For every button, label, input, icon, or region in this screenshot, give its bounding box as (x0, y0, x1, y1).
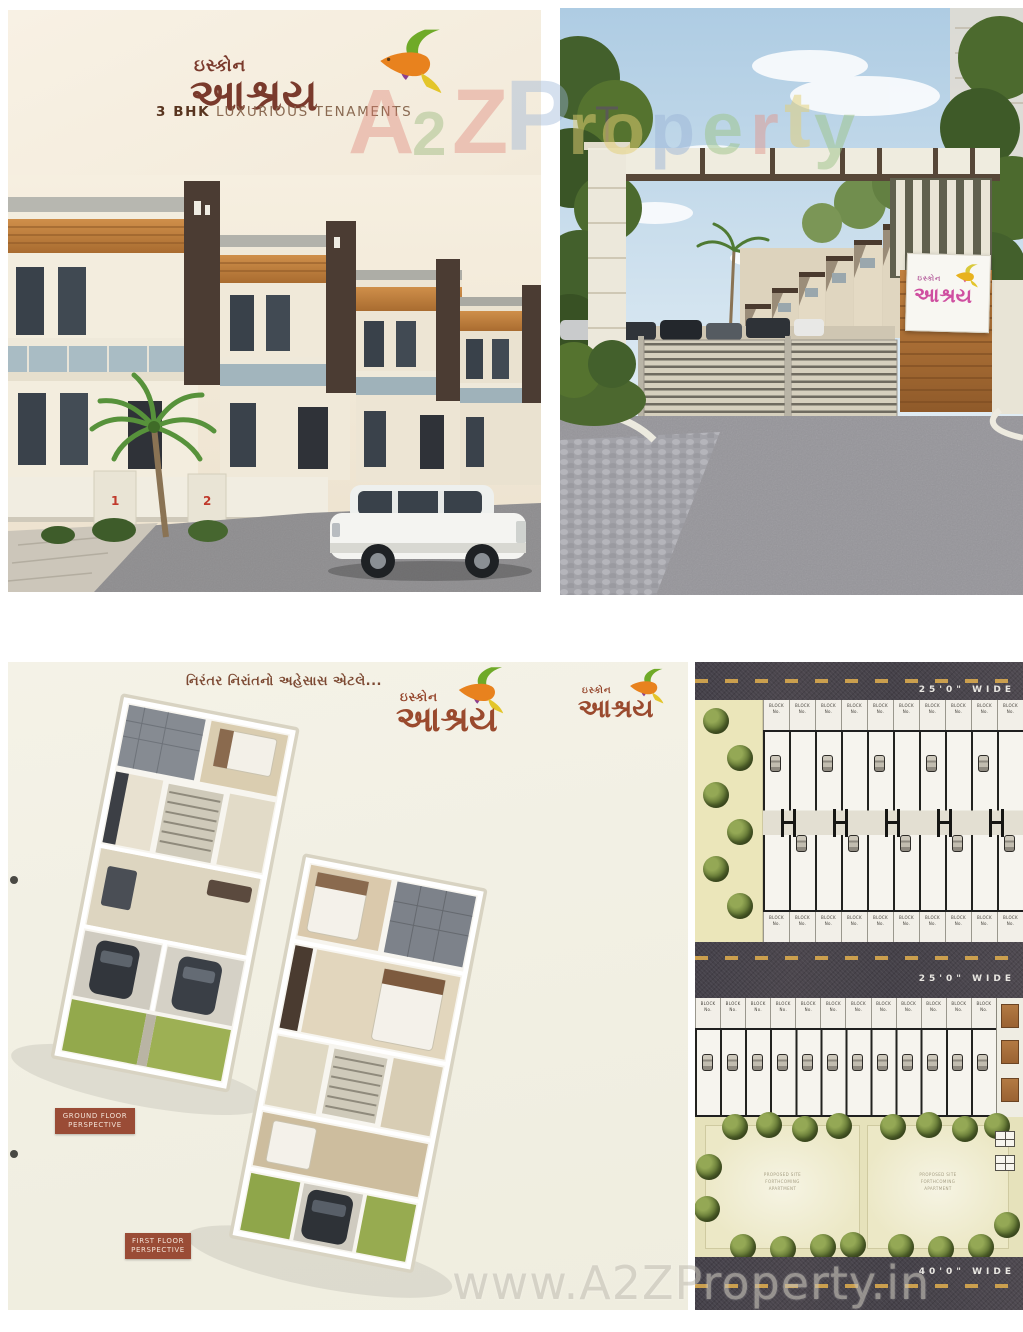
block-labels-row: BLOCKNo.BLOCKNo.BLOCKNo.BLOCKNo.BLOCKNo.… (763, 910, 1023, 942)
block-label: BLOCKNo. (971, 700, 997, 730)
parked-car-icon (1004, 835, 1015, 852)
shrub (188, 520, 228, 542)
parked-car-icon (827, 1054, 838, 1071)
plot-field-2 (695, 1030, 996, 1115)
block-label: BLOCKNo. (763, 912, 789, 942)
bushes-left (560, 340, 646, 426)
block-label: BLOCKNo. (946, 998, 971, 1028)
block-label: BLOCKNo. (871, 998, 896, 1028)
metal-gate (638, 336, 897, 422)
parked-car-icon (900, 835, 911, 852)
tree-icon (696, 1154, 722, 1180)
binder-hole (10, 876, 18, 884)
driveway-marking (833, 809, 848, 837)
block-label: BLOCKNo. (971, 998, 996, 1028)
cover-panel: 1 2 (8, 10, 541, 592)
tree-icon (695, 1196, 720, 1222)
block-label: BLOCKNo. (745, 998, 770, 1028)
block-label: BLOCKNo. (867, 700, 893, 730)
parked-car-icon (822, 755, 833, 772)
plot-field-1 (763, 732, 1023, 910)
parking-block (1001, 1078, 1019, 1102)
tree-icon (952, 1116, 978, 1142)
tree-icon (703, 708, 729, 734)
house-block-1 (8, 181, 220, 480)
amenity-block (995, 1155, 1015, 1171)
driveway-marking (885, 809, 900, 837)
block-label: BLOCKNo. (763, 700, 789, 730)
road-top: 25'0" WIDE (695, 662, 1023, 700)
parked-car-icon (978, 755, 989, 772)
parked-car-icon (702, 1054, 713, 1071)
parked-car-icon (952, 1054, 963, 1071)
parking-block (1001, 1004, 1019, 1028)
tree-icon (703, 856, 729, 882)
house-block-3 (356, 259, 462, 482)
block-label: BLOCKNo. (770, 998, 795, 1028)
house-block-4 (460, 285, 541, 485)
block-label: BLOCKNo. (997, 700, 1023, 730)
parked-car-icon (977, 1054, 988, 1071)
parked-car-icon (752, 1054, 763, 1071)
parked-car-icon (877, 1054, 888, 1071)
tree-icon (727, 893, 753, 919)
driveway-marking (989, 809, 1004, 837)
amenity-block (995, 1131, 1015, 1147)
siteplan-panel: 25'0" WIDE BLOCKNo.BLOCKNo.BLOCKNo.BLOCK… (695, 662, 1023, 1310)
plots-section-1: BLOCKNo.BLOCKNo.BLOCKNo.BLOCKNo.BLOCKNo.… (695, 700, 1023, 942)
parked-car-icon (848, 835, 859, 852)
block-label: BLOCKNo. (695, 998, 720, 1028)
parked-car-icon (796, 835, 807, 852)
parked-car-icon (727, 1054, 738, 1071)
cover-tagline: 3 BHK LUXURIOUS TENAMENTS (156, 104, 412, 120)
parking-block (1001, 1040, 1019, 1064)
road-bottom: 40'0" WIDE (695, 1257, 1023, 1310)
tree-strip (695, 700, 763, 942)
block-label: BLOCKNo. (971, 912, 997, 942)
block-label: BLOCKNo. (921, 998, 946, 1028)
parked-car-icon (952, 835, 963, 852)
parked-car-icon (902, 1054, 913, 1071)
brand-name-main: આશ્રય (914, 284, 973, 306)
tree-icon (880, 1114, 906, 1140)
garden-plot-text: PROPOSED SITEFORTHCOMINGAPARTMENT (706, 1172, 859, 1192)
block-label: BLOCKNo. (919, 700, 945, 730)
parked-car-icon (852, 1054, 863, 1071)
block-label: BLOCKNo. (945, 912, 971, 942)
driveway-marking (937, 809, 952, 837)
road-width-label: 25'0" WIDE (919, 974, 1015, 984)
hummingbird-icon (354, 28, 476, 94)
rowhouse-render: 1 2 (8, 175, 541, 592)
plot-block-1: BLOCKNo.BLOCKNo.BLOCKNo.BLOCKNo.BLOCKNo.… (763, 700, 1023, 942)
block-labels-row: BLOCKNo.BLOCKNo.BLOCKNo.BLOCKNo.BLOCKNo.… (695, 998, 996, 1030)
floorplan-perspectives (8, 662, 688, 1310)
parked-car-icon (770, 755, 781, 772)
block-label: BLOCKNo. (789, 912, 815, 942)
ground-floor-label: GROUND FLOOR PERSPECTIVE (55, 1108, 135, 1134)
tree-icon (994, 1212, 1020, 1238)
road-middle: 25'0" WIDE (695, 942, 1023, 998)
garden-plot-text: PROPOSED SITEFORTHCOMINGAPARTMENT (868, 1172, 1008, 1192)
plots-section-2: BLOCKNo.BLOCKNo.BLOCKNo.BLOCKNo.BLOCKNo.… (695, 998, 1023, 1117)
road-centerline (695, 1284, 1023, 1288)
shrub (41, 526, 75, 544)
road-width-label: 40'0" WIDE (919, 1267, 1015, 1277)
tree-icon (703, 782, 729, 808)
tree-icon (756, 1112, 782, 1138)
parked-car-icon (874, 755, 885, 772)
tree-icon (727, 819, 753, 845)
parked-car-icon (926, 755, 937, 772)
binder-hole (10, 1150, 18, 1158)
block-label: BLOCKNo. (919, 912, 945, 942)
first-floor-label: FIRST FLOOR PERSPECTIVE (125, 1233, 191, 1259)
block-label: BLOCKNo. (867, 912, 893, 942)
house-block-2 (220, 221, 356, 480)
house-number-2: 2 (203, 494, 211, 508)
block-label: BLOCKNo. (845, 998, 870, 1028)
tagline-bold: 3 BHK (156, 104, 210, 120)
block-label: BLOCKNo. (893, 912, 919, 942)
road-centerline (695, 679, 1023, 683)
tree-icon (840, 1232, 866, 1258)
block-label: BLOCKNo. (945, 700, 971, 730)
garden-plot-right: PROPOSED SITEFORTHCOMINGAPARTMENT (867, 1125, 1009, 1249)
tree-icon (826, 1113, 852, 1139)
right-strip (996, 998, 1023, 1117)
block-label: BLOCKNo. (789, 700, 815, 730)
floorplans-panel: નિરંતર નિરાંતનો અહેસાસ એટલે... ઇસ્કોન આશ… (8, 662, 688, 1310)
tree-icon (916, 1112, 942, 1138)
driveway-marking (781, 809, 796, 837)
gate-sign-board: ઇસ્કોન આશ્રય (905, 253, 991, 333)
block-label: BLOCKNo. (841, 912, 867, 942)
tree-icon (722, 1114, 748, 1140)
block-label: BLOCKNo. (815, 912, 841, 942)
garden-plot-left: PROPOSED SITEFORTHCOMINGAPARTMENT (705, 1125, 860, 1249)
block-label: BLOCKNo. (720, 998, 745, 1028)
block-label: BLOCKNo. (893, 700, 919, 730)
plot-block-2: BLOCKNo.BLOCKNo.BLOCKNo.BLOCKNo.BLOCKNo.… (695, 998, 996, 1117)
block-label: BLOCKNo. (820, 998, 845, 1028)
tree-icon (792, 1116, 818, 1142)
tagline-rest: LUXURIOUS TENAMENTS (210, 104, 412, 120)
shrub (92, 518, 136, 542)
parked-car-icon (777, 1054, 788, 1071)
entrance-panel: ઇસ્કોન આશ્રય (560, 8, 1023, 595)
driveway (560, 410, 1023, 595)
garden-area: PROPOSED SITEFORTHCOMINGAPARTMENT PROPOS… (695, 1117, 1023, 1257)
house-number-1: 1 (111, 494, 119, 508)
block-label: BLOCKNo. (815, 700, 841, 730)
brand-logo: ઇસ્કોન આશ્રય (148, 26, 488, 156)
block-label: BLOCKNo. (795, 998, 820, 1028)
parked-car-icon (802, 1054, 813, 1071)
block-label: BLOCKNo. (896, 998, 921, 1028)
tree-icon (727, 745, 753, 771)
road-centerline (695, 956, 1023, 960)
block-label: BLOCKNo. (997, 912, 1023, 942)
parked-car-icon (927, 1054, 938, 1071)
brochure-collage: 1 2 (0, 0, 1023, 1332)
road-width-label: 25'0" WIDE (919, 685, 1015, 695)
block-labels-row: BLOCKNo.BLOCKNo.BLOCKNo.BLOCKNo.BLOCKNo.… (763, 700, 1023, 732)
block-label: BLOCKNo. (841, 700, 867, 730)
